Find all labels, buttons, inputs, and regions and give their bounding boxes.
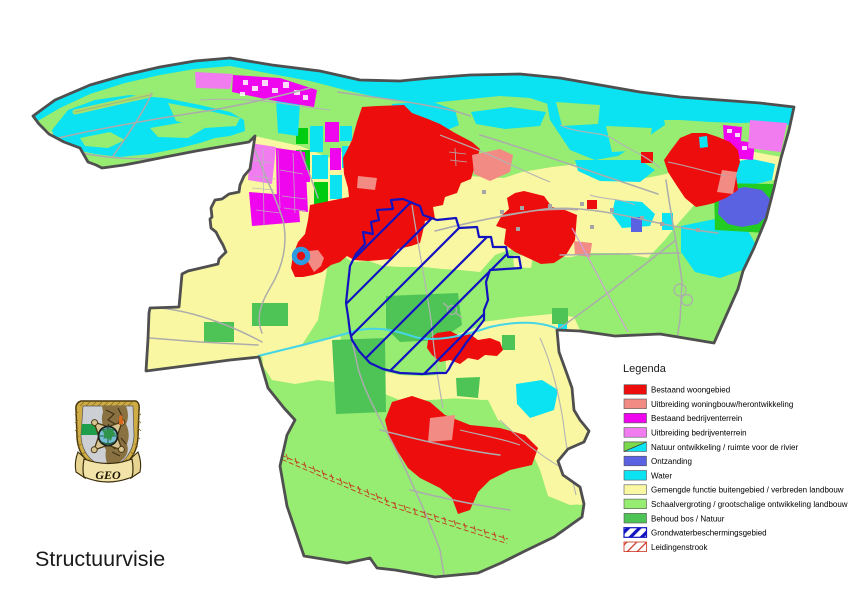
- svg-text:Leidingenstrook: Leidingenstrook: [651, 543, 708, 552]
- svg-text:Structuurvisie: Structuurvisie: [35, 547, 165, 571]
- svg-text:GEO: GEO: [95, 468, 121, 482]
- svg-text:Grondwaterbeschermingsgebied: Grondwaterbeschermingsgebied: [651, 529, 767, 538]
- svg-text:Uitbreiding bedrijventerrein: Uitbreiding bedrijventerrein: [651, 429, 747, 438]
- svg-text:Behoud bos / Natuur: Behoud bos / Natuur: [651, 514, 725, 523]
- svg-text:Water: Water: [651, 471, 672, 480]
- svg-text:Ontzanding: Ontzanding: [651, 457, 692, 466]
- svg-text:Natuur ontwikkeling / ruimte v: Natuur ontwikkeling / ruimte voor de riv…: [651, 443, 799, 452]
- svg-text:Bestaand woongebied: Bestaand woongebied: [651, 386, 730, 395]
- svg-text:Gemengde functie buitengebied: Gemengde functie buitengebied / verbrede…: [651, 486, 844, 495]
- svg-text:Legenda: Legenda: [623, 363, 667, 375]
- svg-text:Schaalvergroting / grootschali: Schaalvergroting / grootschalige ontwikk…: [651, 500, 848, 509]
- svg-text:Bestaand bedrijventerrein: Bestaand bedrijventerrein: [651, 414, 742, 423]
- svg-text:Uitbreiding woningbouw/herontw: Uitbreiding woningbouw/herontwikkeling: [651, 400, 793, 409]
